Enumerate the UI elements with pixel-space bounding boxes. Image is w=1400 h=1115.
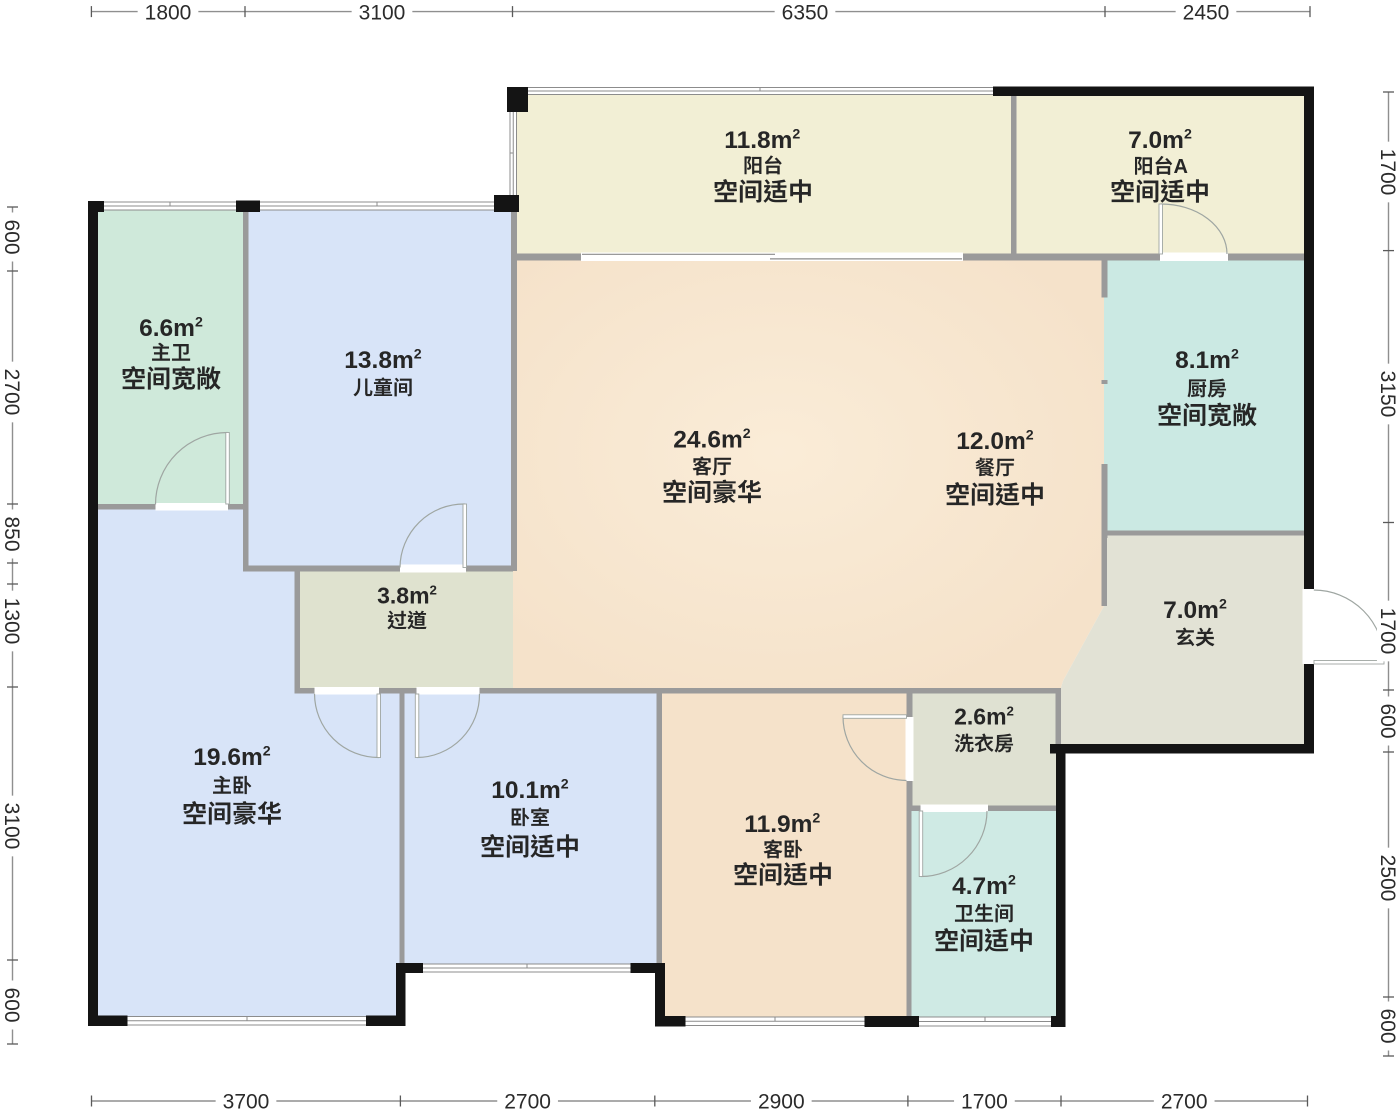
svg-text:A: A (1174, 156, 1188, 178)
svg-text:11.9m2: 11.9m2 (744, 811, 820, 838)
svg-text:2450: 2450 (1183, 1, 1230, 24)
svg-text:2500: 2500 (1376, 855, 1399, 902)
svg-text:3100: 3100 (359, 1, 406, 24)
svg-text:8.1m2: 8.1m2 (1175, 347, 1239, 374)
svg-text:2.6m2: 2.6m2 (954, 703, 1014, 729)
svg-text:11.8m2: 11.8m2 (724, 127, 800, 154)
svg-text:1300: 1300 (0, 598, 23, 645)
svg-text:3700: 3700 (223, 1091, 270, 1114)
svg-text:3150: 3150 (1376, 371, 1399, 418)
svg-text:12.0m2: 12.0m2 (956, 428, 1033, 455)
svg-text:1800: 1800 (145, 1, 192, 24)
svg-text:2700: 2700 (1161, 1091, 1208, 1114)
svg-text:7.0m2: 7.0m2 (1163, 597, 1227, 624)
svg-text:2700: 2700 (0, 369, 23, 416)
svg-text:600: 600 (1376, 703, 1399, 738)
svg-text:7.0m2: 7.0m2 (1128, 127, 1192, 154)
svg-text:1700: 1700 (961, 1091, 1008, 1114)
svg-text:600: 600 (0, 219, 23, 254)
svg-text:2900: 2900 (758, 1091, 805, 1114)
svg-text:3100: 3100 (0, 803, 23, 850)
svg-text:24.6m2: 24.6m2 (673, 426, 750, 453)
svg-text:13.8m2: 13.8m2 (344, 347, 421, 374)
svg-text:2700: 2700 (504, 1091, 551, 1114)
svg-text:6350: 6350 (782, 1, 829, 24)
svg-text:10.1m2: 10.1m2 (491, 777, 568, 804)
svg-text:6.6m2: 6.6m2 (139, 315, 203, 342)
svg-text:600: 600 (1376, 1008, 1399, 1043)
svg-text:4.7m2: 4.7m2 (952, 873, 1016, 900)
svg-text:3.8m2: 3.8m2 (377, 582, 437, 608)
svg-text:19.6m2: 19.6m2 (193, 744, 270, 771)
svg-text:600: 600 (0, 987, 23, 1022)
svg-text:1700: 1700 (1376, 608, 1399, 655)
svg-text:1700: 1700 (1376, 149, 1399, 196)
svg-text:850: 850 (0, 516, 23, 551)
